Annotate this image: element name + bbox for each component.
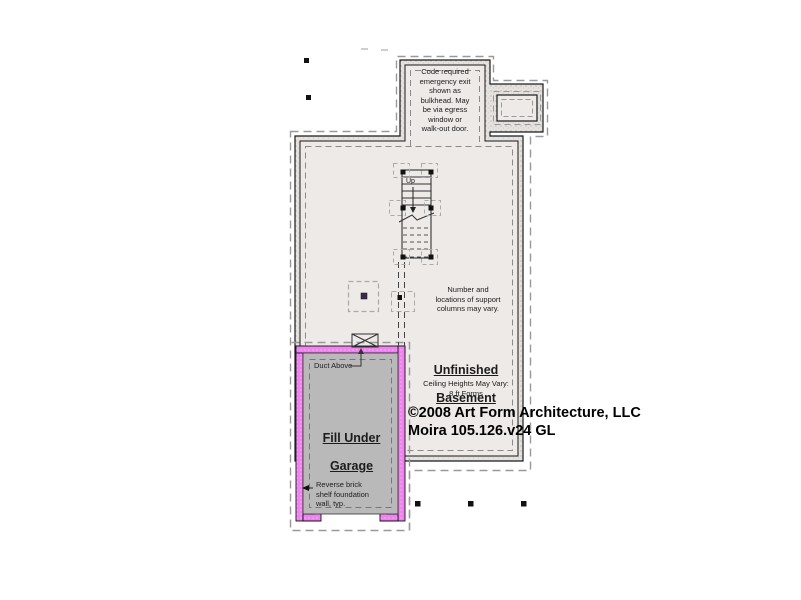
- room-title-line1: Unfinished: [413, 363, 519, 377]
- stairs-up-label: Up: [406, 178, 415, 186]
- column-post-b: [398, 295, 403, 300]
- copyright-line2: Moira 105.126.v24 GL: [408, 422, 641, 440]
- post-top-left-2: [306, 95, 311, 100]
- post-bottom-3: [521, 501, 527, 507]
- ceiling-height-note: Ceiling Heights May Vary: 8 ft Forms: [411, 379, 521, 398]
- garage-wall-top: [296, 346, 405, 353]
- basement-floor-plan: Code required emergency exit shown as bu…: [0, 0, 801, 600]
- column-post-a: [361, 293, 367, 299]
- post-bottom-1: [415, 501, 421, 507]
- garage-title-line1: Fill Under: [303, 431, 400, 445]
- copyright-text: ©2008 Art Form Architecture, LLC Moira 1…: [408, 404, 641, 440]
- egress-code-note: Code required emergency exit shown as bu…: [403, 67, 487, 134]
- garage-title-line2: Garage: [303, 459, 400, 473]
- post-bottom-2: [468, 501, 474, 507]
- garage-wall-left: [296, 346, 303, 521]
- garage-title: Fill Under Garage: [303, 417, 400, 487]
- duct-above-label: Duct Above: [314, 361, 352, 371]
- floor-plan-drawing: [0, 0, 801, 600]
- faint-porch-dashes: [361, 49, 392, 50]
- copyright-line1: ©2008 Art Form Architecture, LLC: [408, 404, 641, 422]
- post-top-left-1: [304, 58, 309, 63]
- bulkhead-well: [497, 95, 537, 121]
- support-columns-note: Number and locations of support columns …: [418, 285, 518, 314]
- foundation-wall-note: Reverse brick shelf foundation wall, typ…: [316, 480, 386, 509]
